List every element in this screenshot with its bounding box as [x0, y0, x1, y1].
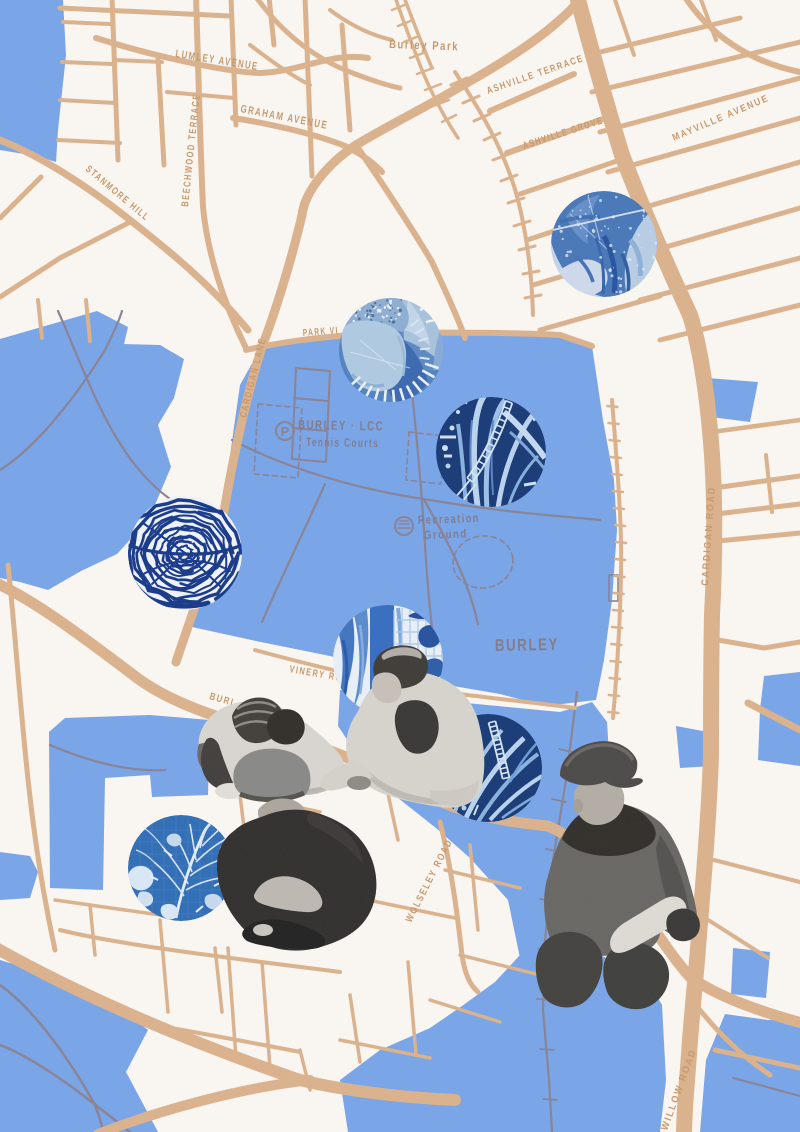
svg-text:BURLEY: BURLEY	[495, 635, 559, 655]
svg-text:Recreation: Recreation	[418, 511, 480, 527]
svg-text:Ground: Ground	[424, 526, 468, 542]
svg-text:Tennis Courts: Tennis Courts	[306, 435, 379, 450]
svg-text:BURLEY · LCC: BURLEY · LCC	[298, 417, 384, 433]
svg-text:P: P	[281, 424, 290, 439]
svg-text:Burley Park: Burley Park	[389, 37, 459, 53]
